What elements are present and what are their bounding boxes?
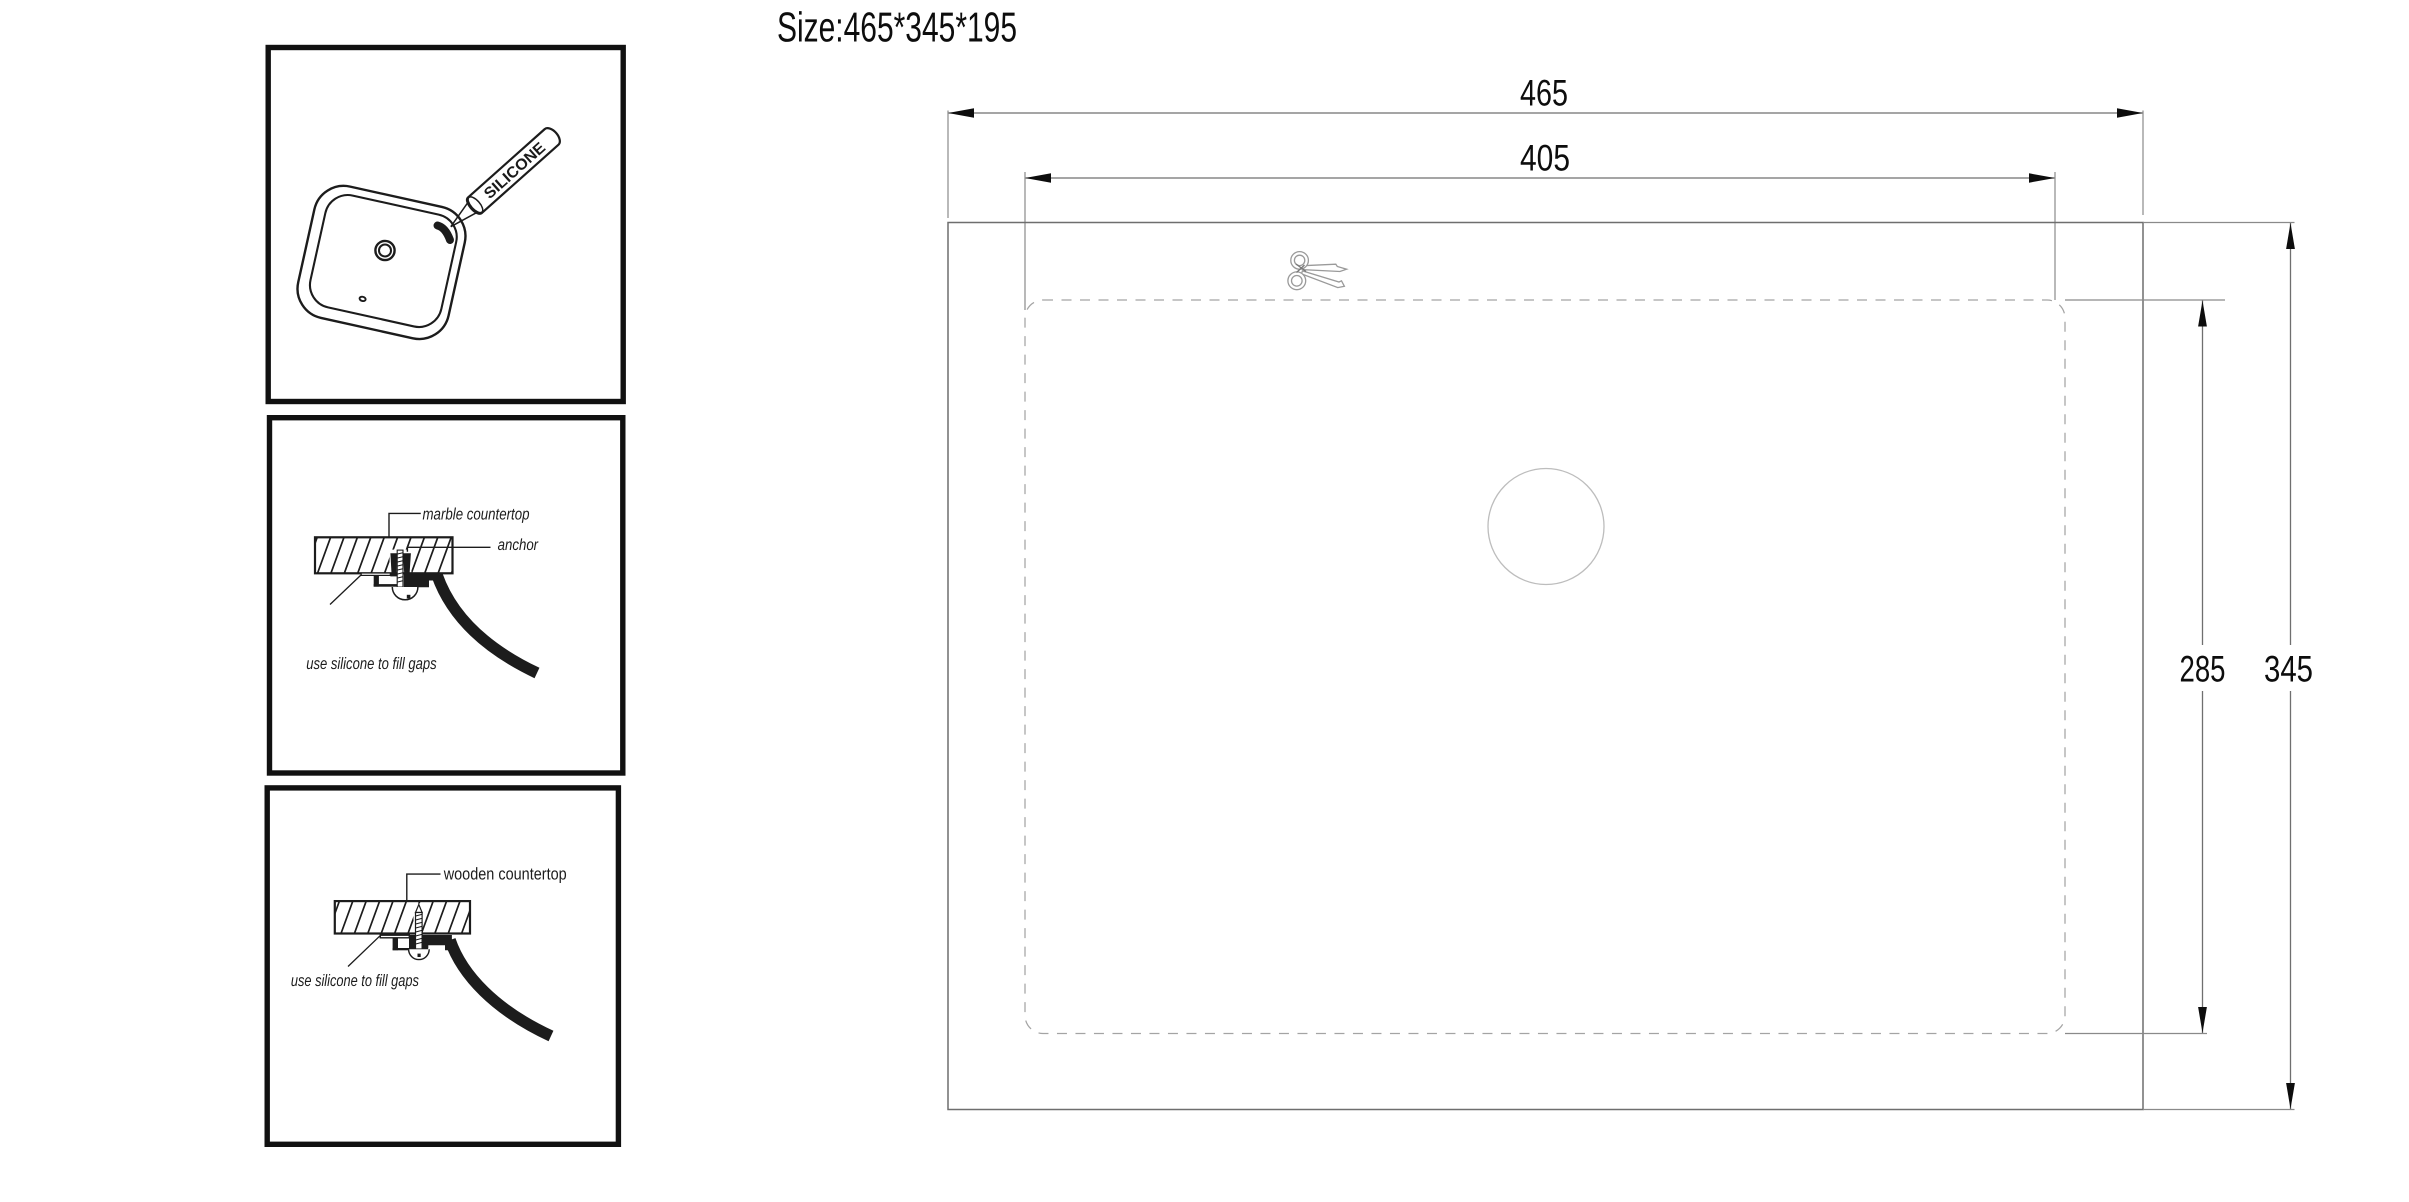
svg-text:285: 285 [2180,649,2226,690]
svg-text:anchor: anchor [498,537,539,554]
svg-text:465: 465 [1520,73,1568,114]
svg-text:marble countertop: marble countertop [423,505,530,523]
svg-text:wooden countertop: wooden countertop [443,865,567,884]
svg-text:use silicone to fill gaps: use silicone to fill gaps [306,655,437,673]
svg-text:345: 345 [2264,649,2313,690]
svg-text:use silicone to fill gaps: use silicone to fill gaps [291,972,419,990]
svg-text:Size:465*345*195: Size:465*345*195 [777,4,1017,51]
svg-text:405: 405 [1520,138,1570,179]
